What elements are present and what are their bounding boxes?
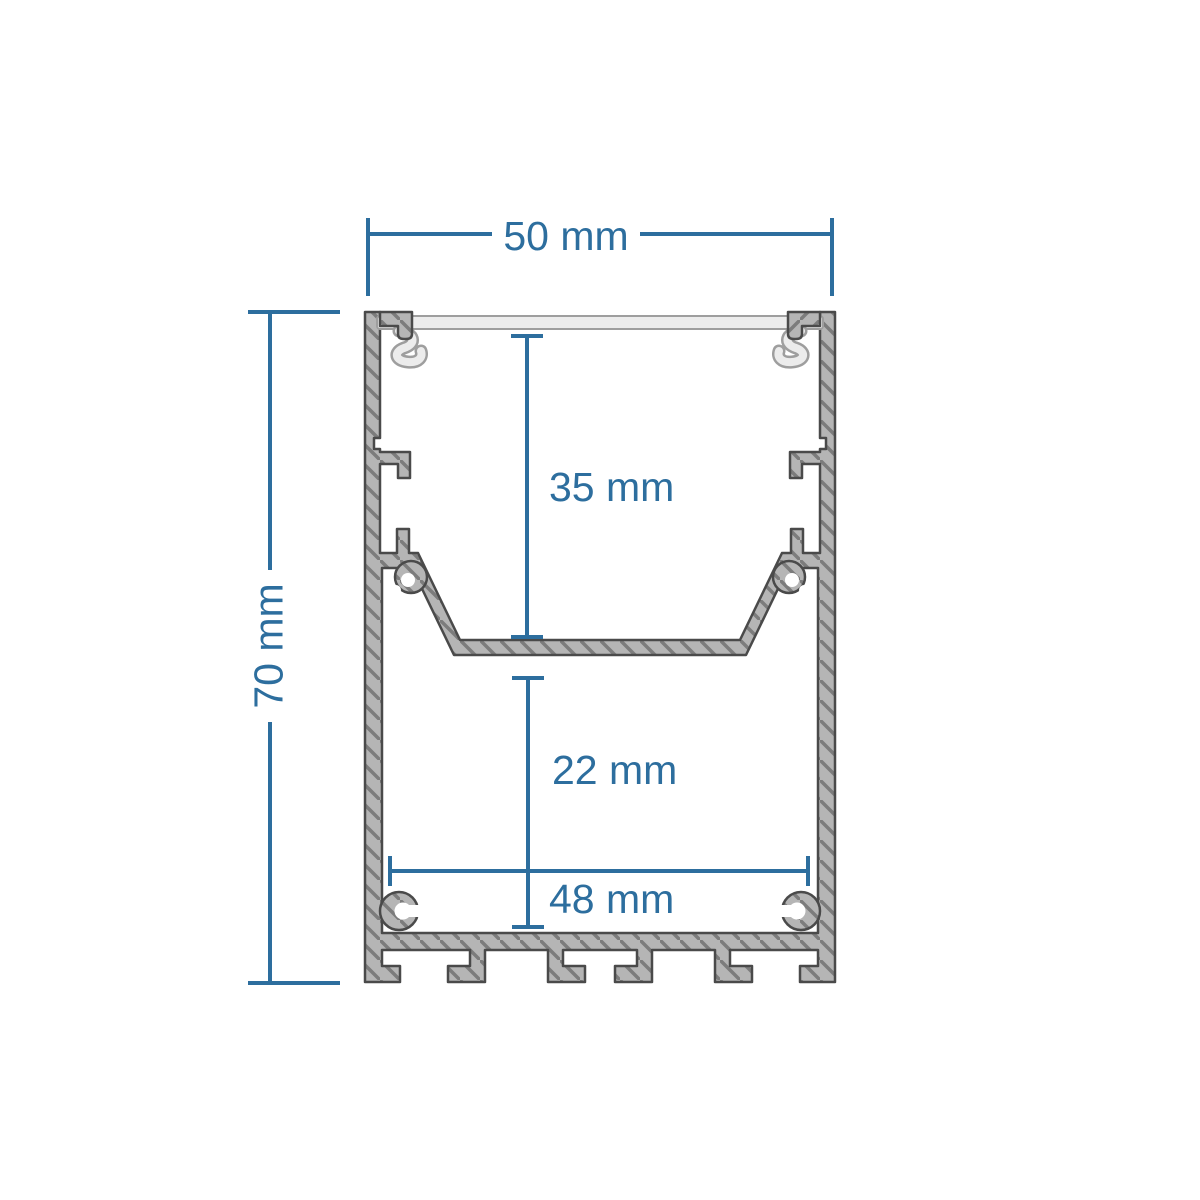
label-overall-width: 50 mm — [503, 213, 628, 259]
background — [0, 0, 1200, 1200]
diffuser-cover — [377, 316, 823, 329]
label-upper-cavity: 35 mm — [549, 464, 674, 510]
label-overall-height: 70 mm — [245, 583, 291, 708]
label-inner-width: 48 mm — [549, 876, 674, 922]
diagram-canvas: 50 mm 70 mm 35 mm 22 mm 48 mm — [0, 0, 1200, 1200]
profile-drawing: 50 mm 70 mm 35 mm 22 mm 48 mm — [0, 0, 1200, 1200]
label-lower-cavity: 22 mm — [552, 747, 677, 793]
